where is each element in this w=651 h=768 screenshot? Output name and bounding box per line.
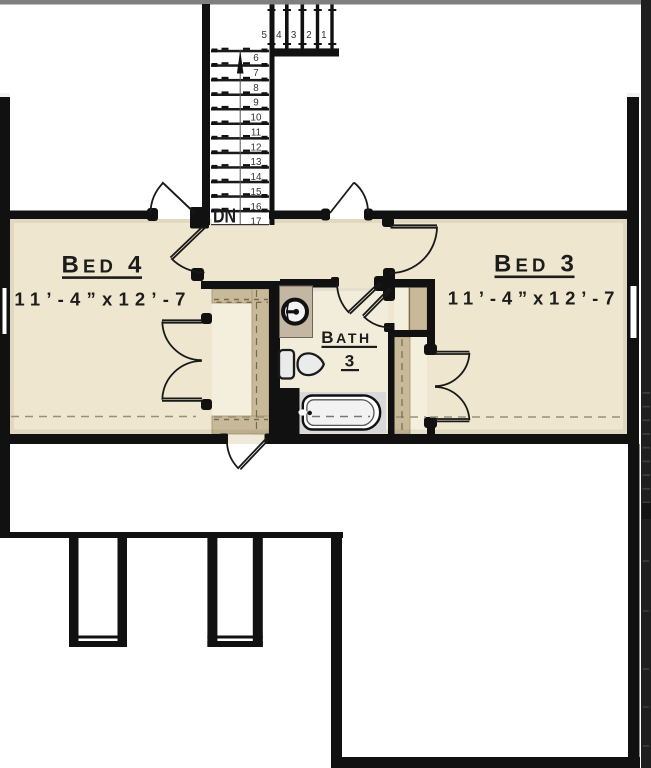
svg-text:7: 7 [253,68,258,79]
svg-text:17: 17 [251,217,262,228]
svg-text:8: 8 [253,83,259,94]
svg-text:9: 9 [253,98,258,109]
svg-text:DN: DN [213,205,236,227]
svg-text:3: 3 [291,30,297,41]
svg-text:1: 1 [321,30,326,41]
svg-text:16: 16 [251,202,262,213]
svg-text:15: 15 [251,187,262,198]
svg-text:BATH: BATH [321,328,371,347]
svg-text:11’-4”x12’-7: 11’-4”x12’-7 [14,289,191,310]
svg-text:11: 11 [251,127,261,138]
svg-text:BED 3: BED 3 [494,251,578,278]
svg-text:3: 3 [345,352,354,371]
svg-text:10: 10 [251,113,262,124]
svg-text:BED 4: BED 4 [61,252,145,279]
svg-text:6: 6 [253,53,259,64]
svg-text:12: 12 [251,142,262,153]
svg-text:5: 5 [261,30,267,41]
svg-text:14: 14 [251,172,262,183]
svg-text:13: 13 [251,157,262,168]
svg-text:2: 2 [306,30,311,41]
svg-text:4: 4 [276,30,282,41]
svg-text:11’-4”x12’-7: 11’-4”x12’-7 [448,288,620,309]
